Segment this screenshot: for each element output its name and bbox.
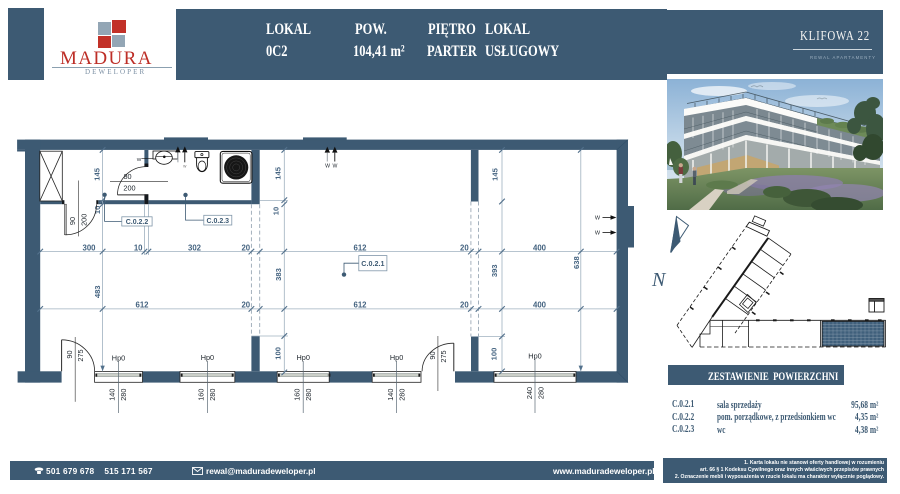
svg-text:275: 275 xyxy=(439,350,448,362)
svg-text:145: 145 xyxy=(490,167,499,180)
svg-text:C.0.2.2: C.0.2.2 xyxy=(126,219,149,226)
svg-text:280: 280 xyxy=(398,389,407,401)
svg-text:W: W xyxy=(325,163,330,169)
svg-text:10: 10 xyxy=(93,206,102,214)
svg-text:280: 280 xyxy=(119,389,128,401)
svg-text:Hp0: Hp0 xyxy=(528,352,541,361)
svg-text:145: 145 xyxy=(92,167,101,180)
svg-text:400: 400 xyxy=(533,243,547,252)
svg-text:200: 200 xyxy=(80,214,89,226)
svg-text:100: 100 xyxy=(274,347,283,360)
svg-text:20: 20 xyxy=(241,243,250,252)
svg-text:Hp0: Hp0 xyxy=(112,354,125,363)
svg-text:160: 160 xyxy=(197,389,206,401)
svg-text:400: 400 xyxy=(533,301,547,310)
svg-text:393: 393 xyxy=(490,264,499,277)
svg-text:Hp0: Hp0 xyxy=(297,353,310,362)
svg-text:10: 10 xyxy=(134,243,143,252)
svg-text:C.0.2.3: C.0.2.3 xyxy=(207,218,230,225)
svg-text:100: 100 xyxy=(489,348,498,361)
svg-text:383: 383 xyxy=(274,268,283,281)
svg-text:145: 145 xyxy=(274,166,283,179)
svg-text:C.0.2.1: C.0.2.1 xyxy=(361,259,384,268)
svg-text:W: W xyxy=(137,157,142,163)
svg-text:w: w xyxy=(183,164,187,169)
svg-text:483: 483 xyxy=(93,285,102,298)
svg-text:Hp0: Hp0 xyxy=(390,353,403,362)
svg-text:W: W xyxy=(595,216,601,222)
svg-text:612: 612 xyxy=(135,301,149,310)
svg-text:10: 10 xyxy=(272,207,281,215)
svg-text:90: 90 xyxy=(65,350,74,358)
svg-text:612: 612 xyxy=(353,301,367,310)
svg-text:140: 140 xyxy=(108,389,117,401)
svg-text:Hp0: Hp0 xyxy=(201,353,214,362)
svg-text:280: 280 xyxy=(208,389,217,401)
svg-text:240: 240 xyxy=(525,387,534,399)
svg-text:W: W xyxy=(332,163,337,169)
svg-text:W: W xyxy=(595,231,601,237)
svg-text:90: 90 xyxy=(428,351,437,359)
svg-text:638: 638 xyxy=(572,256,581,269)
svg-text:302: 302 xyxy=(188,243,202,252)
svg-text:300: 300 xyxy=(82,243,96,252)
svg-text:20: 20 xyxy=(460,301,469,310)
svg-text:612: 612 xyxy=(353,243,367,252)
svg-text:20: 20 xyxy=(241,301,250,310)
svg-text:280: 280 xyxy=(304,389,313,401)
svg-text:90: 90 xyxy=(68,217,77,225)
svg-text:280: 280 xyxy=(537,387,546,399)
svg-text:200: 200 xyxy=(123,184,135,193)
svg-text:275: 275 xyxy=(76,349,85,361)
svg-text:20: 20 xyxy=(460,243,469,252)
svg-text:140: 140 xyxy=(386,389,395,401)
svg-text:160: 160 xyxy=(293,389,302,401)
